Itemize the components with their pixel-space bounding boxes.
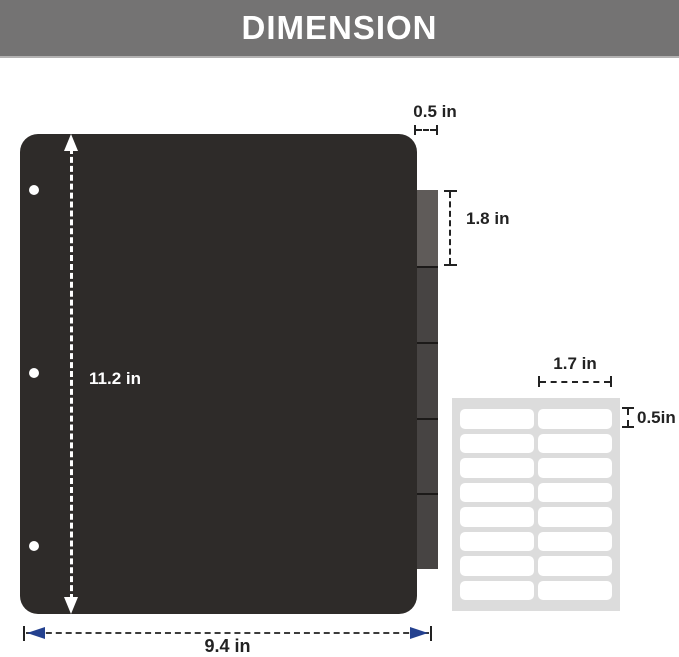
dashed-line <box>449 192 451 264</box>
dashed-line <box>26 632 429 634</box>
tab-height-label: 1.8 in <box>466 209 509 229</box>
label-width-dimension <box>538 376 612 387</box>
binder-divider: 11.2 in <box>20 134 417 614</box>
label-cell <box>538 409 612 429</box>
arrow-down-icon <box>64 597 78 614</box>
dashed-line <box>540 381 610 383</box>
label-cell <box>538 532 612 552</box>
divider-height-label: 11.2 in <box>89 369 141 389</box>
label-cell <box>538 458 612 478</box>
label-cell <box>460 556 534 576</box>
divider-tab <box>417 418 438 493</box>
tab-width-dimension <box>414 125 438 135</box>
label-height-dimension <box>622 407 634 428</box>
label-cell <box>460 434 534 454</box>
divider-tab <box>417 190 438 266</box>
label-cell <box>538 507 612 527</box>
punch-hole <box>29 185 39 195</box>
label-cell <box>460 507 534 527</box>
punch-hole <box>29 541 39 551</box>
tick-mark <box>444 264 457 266</box>
tab-height-dimension <box>444 190 457 266</box>
label-width-label: 1.7 in <box>538 354 612 374</box>
label-cell <box>538 483 612 503</box>
label-cell <box>460 532 534 552</box>
label-cell <box>460 409 534 429</box>
punch-hole <box>29 368 39 378</box>
dashed-line <box>627 409 629 426</box>
tab-width-label: 0.5 in <box>408 102 462 122</box>
header-banner: DIMENSION <box>0 0 679 58</box>
tick-mark <box>610 376 612 387</box>
label-height-label: 0.5in <box>637 408 676 428</box>
label-cell <box>538 556 612 576</box>
tick-mark <box>622 426 634 428</box>
label-sheet <box>452 398 620 611</box>
label-cell <box>538 581 612 601</box>
label-cell <box>460 458 534 478</box>
tick-mark <box>436 125 438 135</box>
dashed-line <box>416 129 436 131</box>
divider-tab <box>417 493 438 569</box>
label-cell <box>460 483 534 503</box>
label-cell <box>538 434 612 454</box>
page-title: DIMENSION <box>241 0 437 56</box>
label-cell <box>460 581 534 601</box>
dimension-diagram: DIMENSION 11.2 in 0.5 in 1.8 in <box>0 0 679 654</box>
divider-tab <box>417 266 438 342</box>
divider-tab <box>417 342 438 418</box>
height-dimension-dashed-line <box>70 148 73 600</box>
